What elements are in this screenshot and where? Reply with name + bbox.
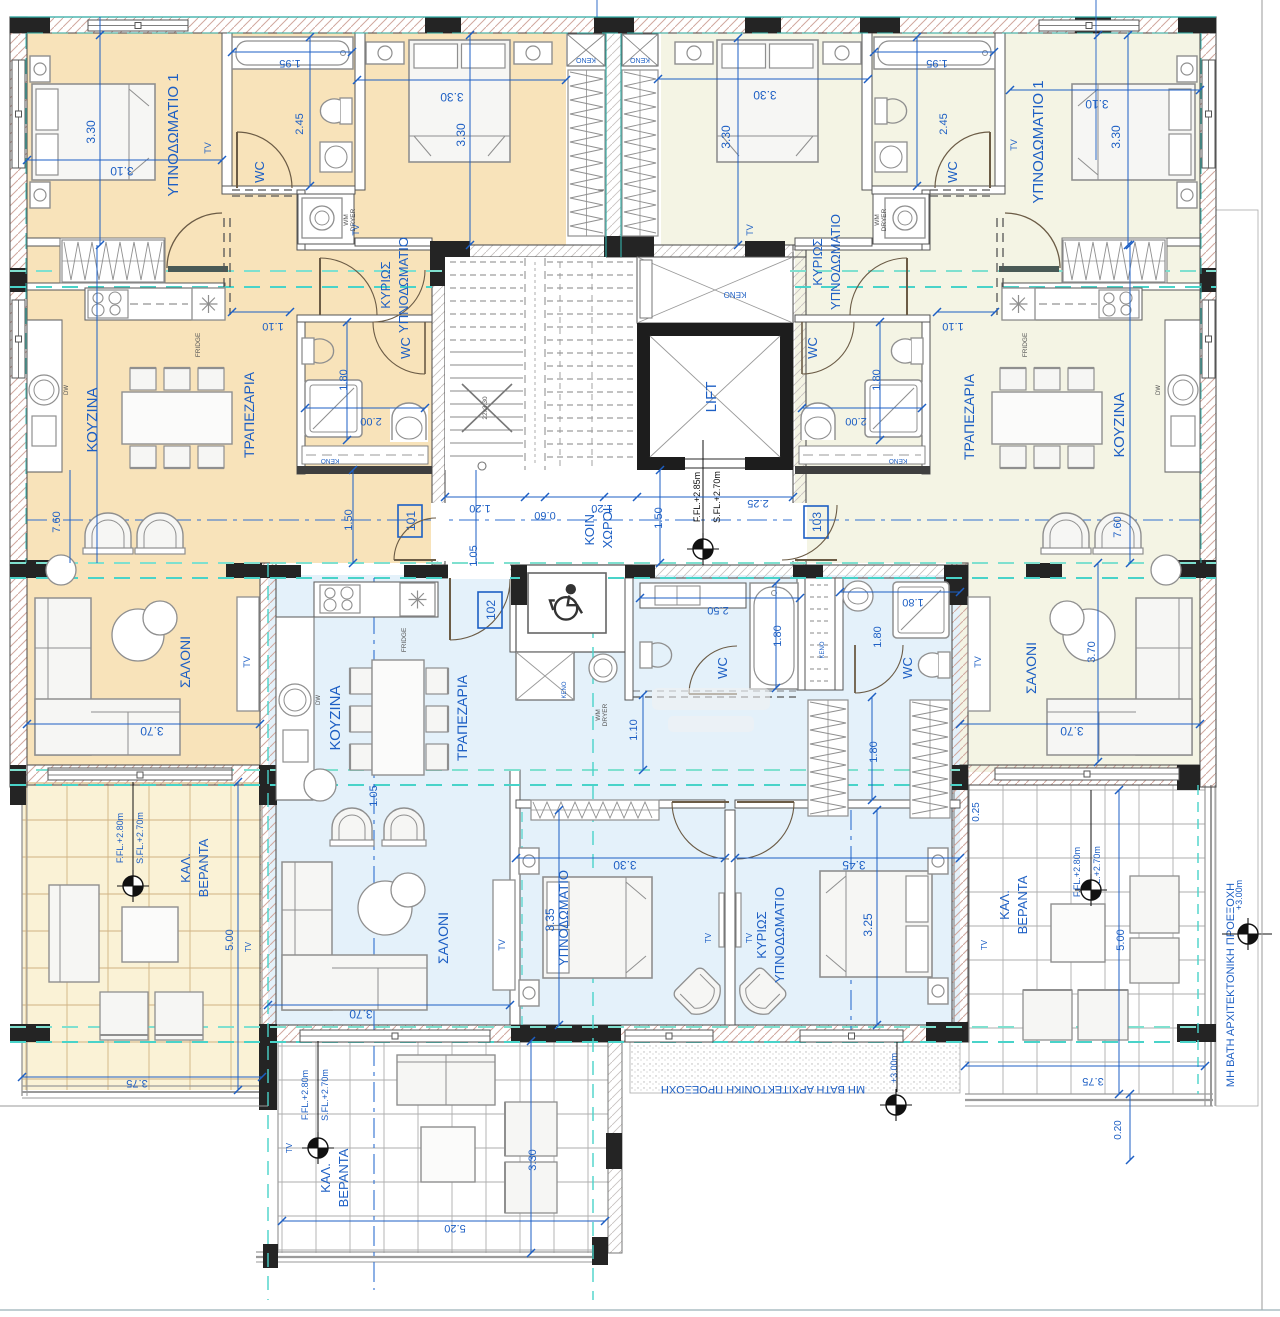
svg-text:WC: WC bbox=[252, 161, 267, 183]
svg-text:3.10: 3.10 bbox=[110, 164, 134, 178]
svg-text:ΚΑΛ.: ΚΑΛ. bbox=[178, 853, 193, 883]
svg-text:ΚΕΝΟ: ΚΕΝΟ bbox=[820, 641, 826, 658]
svg-text:3.70: 3.70 bbox=[1086, 641, 1098, 662]
svg-text:2.00: 2.00 bbox=[360, 415, 381, 427]
svg-text:ΚΥΡΙΩΣ: ΚΥΡΙΩΣ bbox=[378, 261, 393, 308]
svg-text:TV: TV bbox=[242, 656, 252, 668]
svg-text:3.45: 3.45 bbox=[842, 858, 866, 872]
svg-text:ΚΑΛ.: ΚΑΛ. bbox=[997, 890, 1012, 920]
svg-text:3.30: 3.30 bbox=[84, 120, 98, 144]
svg-text:ΚΥΡΙΩΣ: ΚΥΡΙΩΣ bbox=[754, 911, 769, 958]
svg-text:1.10: 1.10 bbox=[628, 719, 640, 740]
svg-text:3.30: 3.30 bbox=[440, 90, 464, 104]
svg-text:ΤΡΑΠΕΖΑΡΙΑ: ΤΡΑΠΕΖΑΡΙΑ bbox=[241, 371, 257, 458]
svg-text:3.75: 3.75 bbox=[1082, 1075, 1103, 1087]
svg-text:3.35: 3.35 bbox=[543, 908, 557, 932]
svg-text:3.30: 3.30 bbox=[454, 123, 468, 147]
svg-text:ΤΡΑΠΕΖΑΡΙΑ: ΤΡΑΠΕΖΑΡΙΑ bbox=[454, 674, 470, 761]
svg-text:2.45: 2.45 bbox=[294, 113, 306, 134]
svg-text:WM: WM bbox=[595, 709, 602, 721]
svg-text:ΣΑΛΟΝΙ: ΣΑΛΟΝΙ bbox=[435, 912, 451, 964]
svg-text:ΥΠΝΟΔΩΜΑΤΙΟ 1: ΥΠΝΟΔΩΜΑΤΙΟ 1 bbox=[165, 73, 182, 196]
svg-text:DW: DW bbox=[64, 385, 70, 395]
svg-text:DRYER: DRYER bbox=[602, 703, 609, 726]
svg-text:1.05: 1.05 bbox=[468, 545, 480, 566]
svg-text:3.70: 3.70 bbox=[1060, 724, 1084, 738]
svg-text:7.60: 7.60 bbox=[1112, 516, 1124, 537]
svg-text:TV: TV bbox=[973, 656, 983, 668]
svg-text:0.20: 0.20 bbox=[1113, 1120, 1124, 1140]
svg-text:WC: WC bbox=[900, 657, 915, 679]
svg-text:FRIDGE: FRIDGE bbox=[401, 627, 408, 652]
svg-text:LIFT: LIFT bbox=[703, 382, 720, 413]
svg-text:ΚΟΥΖΙΝΑ: ΚΟΥΖΙΝΑ bbox=[327, 686, 344, 751]
svg-text:ΚΕΝΟ: ΚΕΝΟ bbox=[321, 457, 339, 464]
svg-text:ΒΕΡΑΝΤΑ: ΒΕΡΑΝΤΑ bbox=[336, 1148, 351, 1207]
svg-text:WC: WC bbox=[398, 337, 413, 359]
svg-text:WC: WC bbox=[805, 337, 820, 359]
svg-text:ΧΩΡΟΙ: ΧΩΡΟΙ bbox=[600, 508, 615, 549]
svg-text:1.80: 1.80 bbox=[902, 596, 923, 608]
svg-text:ΒΕΡΑΝΤΑ: ΒΕΡΑΝΤΑ bbox=[196, 838, 211, 897]
svg-text:5.00: 5.00 bbox=[1115, 929, 1127, 950]
svg-text:1.80: 1.80 bbox=[868, 741, 880, 762]
svg-text:1.80: 1.80 bbox=[871, 369, 883, 390]
svg-text:2.00: 2.00 bbox=[845, 415, 866, 427]
svg-text:0.25: 0.25 bbox=[971, 802, 982, 822]
svg-text:S.FL.+2.70m: S.FL.+2.70m bbox=[320, 1069, 330, 1121]
svg-text:ΜΗ ΒΑΤΗ ΑΡΧΙΤΕΚΤΟΝΙΚΗ ΠΡΟΕΞΟΧΗ: ΜΗ ΒΑΤΗ ΑΡΧΙΤΕΚΤΟΝΙΚΗ ΠΡΟΕΞΟΧΗ bbox=[661, 1083, 865, 1095]
svg-text:TV: TV bbox=[497, 939, 507, 951]
svg-text:102: 102 bbox=[484, 600, 498, 620]
svg-text:0.60: 0.60 bbox=[534, 509, 555, 521]
svg-text:ΣΑΛΟΝΙ: ΣΑΛΟΝΙ bbox=[177, 636, 193, 688]
svg-text:103: 103 bbox=[810, 512, 824, 532]
svg-text:3.75: 3.75 bbox=[126, 1077, 147, 1089]
svg-text:22x3.30: 22x3.30 bbox=[482, 396, 489, 420]
svg-text:1.10: 1.10 bbox=[262, 320, 283, 332]
svg-text:ΚΟΥΖΙΝΑ: ΚΟΥΖΙΝΑ bbox=[84, 388, 101, 453]
svg-text:ΚΕΝΟ: ΚΕΝΟ bbox=[630, 56, 650, 63]
svg-text:ΚΕΝΟ: ΚΕΝΟ bbox=[576, 56, 596, 63]
svg-text:1.95: 1.95 bbox=[279, 57, 300, 69]
svg-text:1.95: 1.95 bbox=[926, 57, 947, 69]
svg-text:DRYER: DRYER bbox=[881, 208, 888, 231]
svg-text:5.20: 5.20 bbox=[444, 1222, 465, 1234]
svg-text:1.20: 1.20 bbox=[469, 502, 490, 514]
svg-text:1.50: 1.50 bbox=[653, 507, 665, 528]
svg-text:WC: WC bbox=[715, 657, 730, 679]
svg-text:TV: TV bbox=[704, 932, 713, 943]
svg-text:ΥΠΝΟΔΩΜΑΤΙΟ: ΥΠΝΟΔΩΜΑΤΙΟ bbox=[828, 214, 843, 310]
svg-text:FRIDGE: FRIDGE bbox=[1022, 332, 1029, 357]
svg-text:3.30: 3.30 bbox=[613, 858, 637, 872]
svg-text:ΚΟΥΖΙΝΑ: ΚΟΥΖΙΝΑ bbox=[1111, 393, 1128, 458]
svg-text:WM: WM bbox=[874, 214, 881, 226]
svg-text:3.70: 3.70 bbox=[140, 724, 164, 738]
svg-text:TV: TV bbox=[745, 932, 754, 943]
svg-text:1.10: 1.10 bbox=[942, 320, 963, 332]
svg-text:3.10: 3.10 bbox=[1085, 97, 1109, 111]
svg-text:1.80: 1.80 bbox=[338, 369, 350, 390]
svg-text:ΣΑΛΟΝΙ: ΣΑΛΟΝΙ bbox=[1023, 642, 1039, 694]
svg-text:ΚΥΡΙΩΣ: ΚΥΡΙΩΣ bbox=[810, 238, 825, 285]
svg-text:101: 101 bbox=[404, 511, 418, 531]
svg-text:ΚΟΙΝ.: ΚΟΙΝ. bbox=[582, 511, 597, 546]
svg-text:3.30: 3.30 bbox=[527, 1149, 539, 1170]
svg-text:3.30: 3.30 bbox=[753, 88, 777, 102]
svg-text:TV: TV bbox=[285, 1142, 294, 1153]
svg-text:2.50: 2.50 bbox=[707, 604, 728, 616]
svg-text:DW: DW bbox=[316, 695, 322, 705]
svg-text:TV: TV bbox=[244, 941, 253, 952]
svg-text:1.05: 1.05 bbox=[368, 785, 380, 806]
svg-text:1.80: 1.80 bbox=[772, 625, 784, 646]
svg-text:1.80: 1.80 bbox=[872, 626, 884, 647]
svg-text:DW: DW bbox=[1156, 385, 1162, 395]
svg-text:5.00: 5.00 bbox=[224, 929, 236, 950]
svg-text:3.70: 3.70 bbox=[349, 1007, 373, 1021]
svg-text:ΥΠΝΟΔΩΜΑΤΙΟ: ΥΠΝΟΔΩΜΑΤΙΟ bbox=[556, 870, 571, 966]
svg-text:ΥΠΝΟΔΩΜΑΤΙΟ: ΥΠΝΟΔΩΜΑΤΙΟ bbox=[396, 237, 411, 333]
svg-text:WM: WM bbox=[343, 214, 350, 226]
svg-text:WC: WC bbox=[945, 161, 960, 183]
svg-text:2.45: 2.45 bbox=[938, 113, 950, 134]
svg-text:+3.00m: +3.00m bbox=[1234, 880, 1244, 910]
svg-text:ΥΠΝΟΔΩΜΑΤΙΟ 1: ΥΠΝΟΔΩΜΑΤΙΟ 1 bbox=[1030, 80, 1047, 203]
svg-text:FRIDGE: FRIDGE bbox=[195, 332, 202, 357]
svg-text:ΤΡΑΠΕΖΑΡΙΑ: ΤΡΑΠΕΖΑΡΙΑ bbox=[961, 373, 977, 460]
svg-text:TV: TV bbox=[1009, 139, 1019, 151]
svg-text:3.30: 3.30 bbox=[719, 125, 733, 149]
svg-text:F.FL.+2.80m: F.FL.+2.80m bbox=[115, 813, 125, 863]
svg-text:TV: TV bbox=[745, 224, 755, 236]
svg-text:ΚΕΝΟ: ΚΕΝΟ bbox=[724, 290, 747, 299]
svg-text:ΚΑΛ.: ΚΑΛ. bbox=[318, 1163, 333, 1193]
svg-text:S.FL.+2.70m: S.FL.+2.70m bbox=[135, 812, 145, 864]
svg-text:ΜΗ ΒΑΤΗ ΑΡΧΙΤΕΚΤΟΝΙΚΗ ΠΡΟΕΞΟΧΗ: ΜΗ ΒΑΤΗ ΑΡΧΙΤΕΚΤΟΝΙΚΗ ΠΡΟΕΞΟΧΗ bbox=[1225, 883, 1237, 1087]
svg-text:ΚΕΝΟ: ΚΕΝΟ bbox=[562, 681, 568, 698]
svg-text:3.30: 3.30 bbox=[1109, 125, 1123, 149]
svg-text:ΚΕΝΟ: ΚΕΝΟ bbox=[889, 457, 907, 464]
svg-text:ΥΠΝΟΔΩΜΑΤΙΟ: ΥΠΝΟΔΩΜΑΤΙΟ bbox=[772, 887, 787, 983]
svg-text:TV: TV bbox=[980, 939, 989, 950]
svg-text:2.25: 2.25 bbox=[747, 497, 768, 509]
svg-text:3.25: 3.25 bbox=[861, 913, 875, 937]
svg-text:7.60: 7.60 bbox=[51, 511, 63, 532]
svg-text:ΒΕΡΑΝΤΑ: ΒΕΡΑΝΤΑ bbox=[1015, 875, 1030, 934]
svg-text:TV: TV bbox=[203, 142, 213, 154]
svg-text:F.FL.+2.80m: F.FL.+2.80m bbox=[300, 1070, 310, 1120]
svg-text:TV: TV bbox=[351, 224, 361, 236]
